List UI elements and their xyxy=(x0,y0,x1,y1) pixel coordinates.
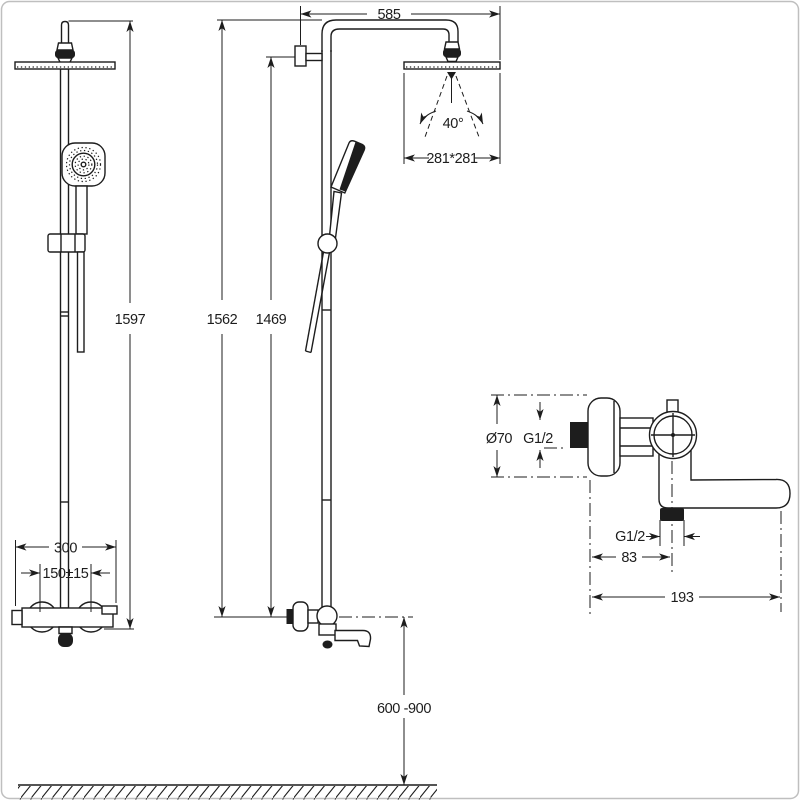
outlet-dot xyxy=(323,641,333,649)
technical-drawing-page: 1597 300 150±15 xyxy=(0,0,800,800)
dim-outlet-thread-label: G1/2 xyxy=(615,529,645,545)
dim-overall-height-label: 1597 xyxy=(115,312,146,328)
handle-stub xyxy=(667,400,678,412)
overhead-shower-side xyxy=(404,62,500,69)
shower-arm xyxy=(322,20,458,52)
shower-system-drawing: 1597 300 150±15 xyxy=(0,0,800,800)
dim-arm-reach-label: 585 xyxy=(378,7,401,23)
floor-hatch xyxy=(18,786,437,800)
rail-holder xyxy=(48,234,85,252)
dim-bracket-height: 1469 xyxy=(256,57,295,617)
mixer-body xyxy=(22,608,113,627)
wall-bracket xyxy=(295,46,322,66)
valve-body-side xyxy=(319,624,336,635)
page-border xyxy=(2,2,799,799)
mixer-side xyxy=(287,602,371,649)
hand-shower-side xyxy=(306,141,365,353)
shower-hose xyxy=(78,252,85,352)
dim-flange-diameter: Ø70 xyxy=(486,395,513,477)
dim-inlet-spacing-label: 150±15 xyxy=(43,566,89,582)
spray-cone: 40° xyxy=(420,72,483,137)
ball-joint xyxy=(55,43,75,63)
dim-outlet-offset-label: 83 xyxy=(621,550,637,566)
dim-outlet-thread: G1/2 xyxy=(615,520,700,546)
inlet-knurl-detail xyxy=(570,422,590,448)
side-view: 40° 281*281 585 xyxy=(207,6,500,785)
mixer-end-cap xyxy=(12,611,22,625)
connector-block xyxy=(620,418,653,456)
floor xyxy=(18,785,437,800)
spout-side xyxy=(335,631,371,647)
dim-install-height: 600 -900 xyxy=(377,617,431,785)
dim-bracket-height-label: 1469 xyxy=(256,312,287,328)
dim-spout-reach-label: 193 xyxy=(671,590,694,606)
dim-inlet-thread: G1/2 xyxy=(523,402,565,468)
dim-outlet-offset: 83 xyxy=(592,550,670,566)
dim-flange-diameter-label: Ø70 xyxy=(486,431,513,447)
overhead-shower-plate xyxy=(15,62,115,69)
mixer-detail xyxy=(570,398,790,521)
detail-view: Ø70 G1/2 xyxy=(486,395,790,618)
pipe-top-stub xyxy=(62,22,69,45)
dim-column-height-label: 1562 xyxy=(207,312,238,328)
dim-spray-angle-label: 40° xyxy=(443,116,464,132)
mixer-front xyxy=(12,602,117,647)
front-view: 1597 300 150±15 xyxy=(12,21,146,647)
ball-joint-side xyxy=(443,42,461,62)
wall-escutcheon-detail xyxy=(588,398,620,476)
dim-spout-reach: 193 xyxy=(592,590,780,606)
spout-tip xyxy=(58,633,73,647)
mixer-outlet-bracket xyxy=(102,606,117,614)
wall-escutcheon-side xyxy=(293,602,308,631)
valve-handle-side xyxy=(317,606,337,626)
dim-inlet-thread-label: G1/2 xyxy=(523,431,553,447)
spout-neck xyxy=(59,627,72,634)
dim-head-size-label: 281*281 xyxy=(426,151,478,167)
dim-install-height-label: 600 -900 xyxy=(377,701,431,717)
rail-holder-knob xyxy=(318,234,337,253)
hand-shower-handle xyxy=(76,186,87,234)
dim-mixer-width-label: 300 xyxy=(54,541,77,557)
